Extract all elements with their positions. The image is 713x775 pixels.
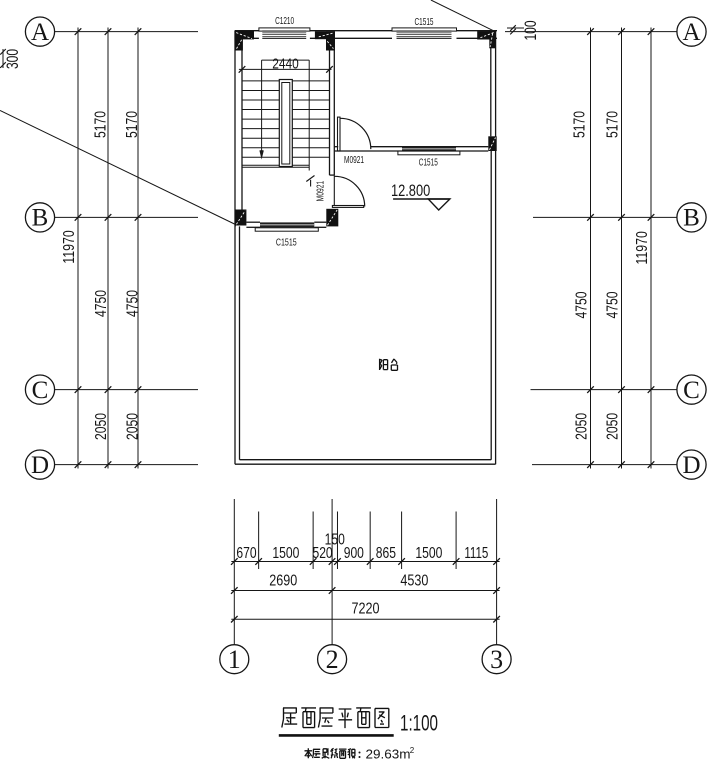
svg-text:M0921: M0921: [344, 154, 364, 166]
svg-text:C: C: [683, 377, 700, 404]
svg-text:A: A: [682, 19, 700, 46]
svg-text:4750: 4750: [124, 290, 141, 317]
svg-text:1:100: 1:100: [400, 710, 438, 735]
svg-text:2690: 2690: [269, 573, 297, 590]
svg-text:3: 3: [490, 645, 503, 674]
svg-text:1115: 1115: [464, 545, 488, 562]
svg-text:4530: 4530: [400, 573, 428, 590]
svg-text:2050: 2050: [573, 413, 590, 440]
svg-text:1: 1: [228, 645, 241, 674]
svg-text:150: 150: [325, 532, 345, 549]
svg-text:4750: 4750: [573, 291, 590, 318]
svg-text:11970: 11970: [634, 231, 651, 265]
svg-text:865: 865: [376, 545, 396, 562]
svg-text:C1515: C1515: [419, 157, 438, 169]
svg-text:2440: 2440: [272, 56, 299, 72]
svg-text:C1515: C1515: [276, 236, 297, 248]
svg-text:4750: 4750: [604, 291, 621, 318]
svg-text:300: 300: [4, 49, 22, 69]
svg-text:B: B: [683, 205, 700, 232]
svg-text:B: B: [32, 205, 49, 232]
svg-text:2: 2: [326, 645, 339, 674]
svg-text:C1515: C1515: [415, 16, 434, 28]
svg-text:5170: 5170: [124, 111, 141, 138]
svg-text:M0921: M0921: [315, 181, 327, 202]
svg-text:1500: 1500: [415, 545, 442, 562]
svg-text:2050: 2050: [124, 413, 141, 440]
svg-text:4750: 4750: [93, 290, 110, 317]
svg-text:29.63m: 29.63m: [366, 746, 411, 761]
svg-text:2050: 2050: [604, 413, 621, 440]
svg-text:5170: 5170: [572, 111, 589, 138]
svg-text:7220: 7220: [352, 601, 380, 618]
svg-text:D: D: [682, 452, 700, 479]
svg-text:900: 900: [344, 545, 364, 562]
svg-text:C1210: C1210: [275, 15, 294, 27]
svg-text:2: 2: [410, 746, 415, 755]
svg-text:12.800: 12.800: [391, 181, 430, 200]
svg-text:D: D: [31, 452, 49, 479]
svg-text:670: 670: [236, 545, 256, 562]
svg-text:2050: 2050: [93, 413, 110, 440]
svg-text:C: C: [32, 377, 49, 404]
svg-text:A: A: [31, 19, 49, 46]
svg-text:1500: 1500: [272, 545, 299, 562]
svg-text:5170: 5170: [92, 111, 109, 138]
svg-text:11970: 11970: [61, 230, 78, 264]
svg-text:5170: 5170: [604, 111, 621, 138]
svg-text:100: 100: [522, 21, 540, 41]
